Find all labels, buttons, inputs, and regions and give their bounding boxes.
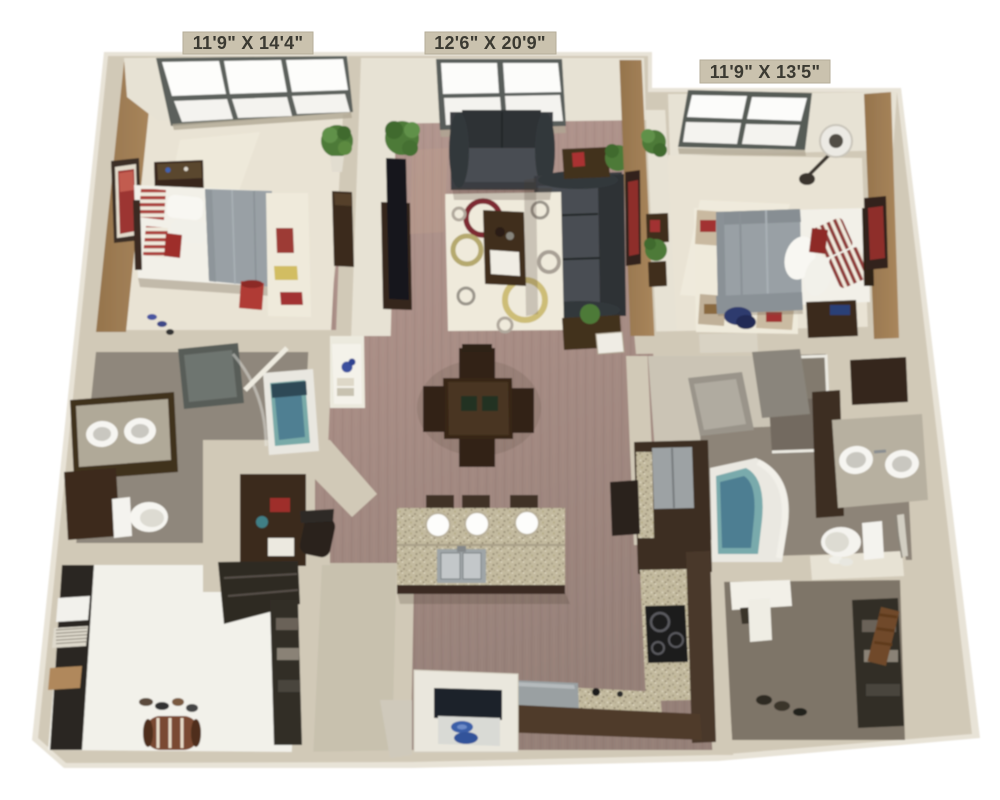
svg-text:12'6" X 20'9": 12'6" X 20'9": [434, 33, 546, 53]
svg-text:11'9" X 13'5": 11'9" X 13'5": [710, 62, 821, 82]
svg-text:11'9" X 14'4": 11'9" X 14'4": [193, 33, 304, 53]
